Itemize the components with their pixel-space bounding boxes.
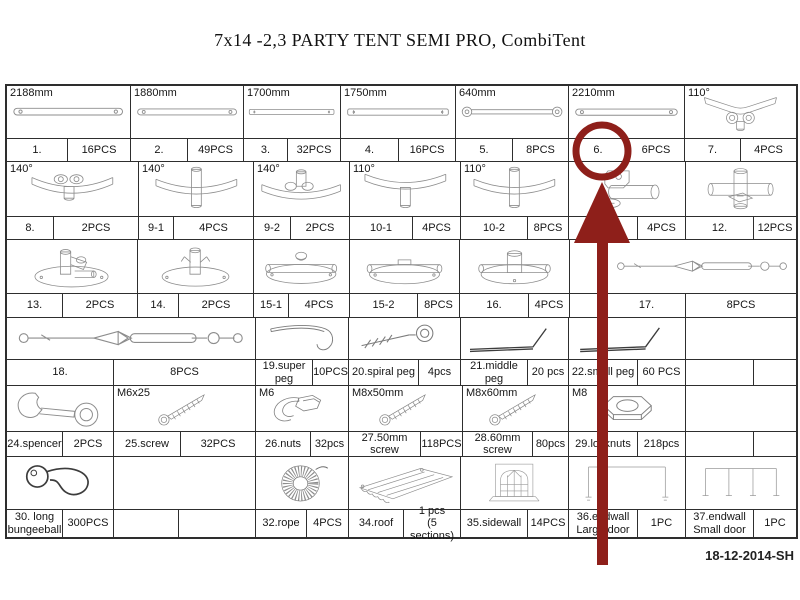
roof-icon [349, 457, 460, 509]
label-row: 30. long bungeeball300PCS32.rope4PCS34.r… [7, 510, 796, 537]
part-quantity: 4PCS [289, 294, 350, 318]
sidewall-icon [461, 457, 568, 509]
spacer-cell [570, 294, 608, 318]
part-quantity [754, 360, 796, 386]
part-illustration [569, 318, 686, 360]
part-quantity: 4PCS [638, 217, 686, 240]
dimension-caption: 1700mm [247, 87, 290, 99]
part-quantity: 4pcs [419, 360, 461, 386]
illustration-row: 140°140°140°110°110° [7, 162, 796, 217]
part-quantity: 4PCS [741, 139, 796, 162]
dimension-caption: 140° [257, 163, 280, 175]
illustration-row: 2188mm1880mm1700mm1750mm640mm2210mm110° [7, 86, 796, 139]
part-illustration: 110° [685, 86, 796, 139]
part-quantity: 4PCS [307, 510, 349, 537]
part-quantity: 2PCS [291, 217, 350, 240]
part-illustration: 2188mm [7, 86, 131, 139]
part-illustration: M8x60mm [463, 386, 569, 432]
base-side-icon [254, 240, 349, 293]
part-number: 27.50mm screw [349, 432, 421, 457]
base-pipe-icon [350, 240, 459, 293]
part-quantity: 80pcs [533, 432, 569, 457]
part-illustration [254, 240, 350, 294]
part-illustration [461, 318, 569, 360]
part-quantity: 60 PCS [638, 360, 686, 386]
part-quantity: 4PCS [174, 217, 254, 240]
tee-connector-icon [569, 162, 685, 216]
part-quantity: 16PCS [68, 139, 131, 162]
part-illustration: 140° [254, 162, 350, 217]
part-quantity: 8PCS [114, 360, 256, 386]
part-illustration [608, 240, 796, 294]
part-number: 11. [569, 217, 638, 240]
part-quantity: 2PCS [63, 432, 114, 457]
illustration-row: M6x25M6M8x50mmM8x60mmM8 [7, 386, 796, 432]
base-hub-icon [460, 240, 569, 293]
turnbuckle-icon [608, 240, 796, 293]
part-quantity: 8PCS [513, 139, 569, 162]
part-number: 15-1 [254, 294, 289, 318]
part-number: 14. [138, 294, 179, 318]
illustration-row [7, 240, 796, 294]
part-quantity [179, 510, 256, 537]
spiral-peg-icon [349, 318, 460, 359]
endwall-large-icon [569, 457, 685, 509]
part-number: 32.rope [256, 510, 307, 537]
part-illustration: 1700mm [244, 86, 341, 139]
part-illustration: 640mm [456, 86, 569, 139]
page-title: 7x14 -2,3 PARTY TENT SEMI PRO, CombiTent [0, 30, 800, 51]
part-number: 35.sidewall [461, 510, 528, 537]
line-peg-icon [461, 318, 568, 359]
part-quantity: 1PC [754, 510, 796, 537]
part-number: 1. [7, 139, 68, 162]
part-number: 25.screw [114, 432, 181, 457]
bungee-ball-icon [7, 457, 113, 509]
part-illustration [138, 240, 254, 294]
part-quantity: 2PCS [63, 294, 138, 318]
part-quantity: 32PCS [288, 139, 341, 162]
part-number: 36.endwall Large door [569, 510, 638, 537]
part-illustration [569, 457, 686, 510]
part-number: 5. [456, 139, 513, 162]
part-illustration: M8 [569, 386, 686, 432]
hook-peg-icon [256, 318, 348, 359]
part-quantity: 1PC [638, 510, 686, 537]
part-illustration [114, 457, 256, 510]
part-illustration: M8x50mm [349, 386, 463, 432]
part-number: 29.locknuts [569, 432, 638, 457]
part-quantity: 8PCS [686, 294, 796, 318]
dimension-caption: 1750mm [344, 87, 387, 99]
wrench-icon [7, 386, 113, 431]
illustration-row [7, 457, 796, 510]
part-number: 12. [686, 217, 754, 240]
part-illustration [686, 386, 796, 432]
part-number: 22.small peg [569, 360, 638, 386]
part-quantity: 118PCS [421, 432, 463, 457]
dimension-caption: 2210mm [572, 87, 615, 99]
part-illustration [686, 457, 796, 510]
part-illustration: 2210mm [569, 86, 685, 139]
part-number: 2. [131, 139, 188, 162]
part-number: 10-1 [350, 217, 413, 240]
part-number [114, 510, 179, 537]
dimension-caption: 110° [353, 163, 375, 175]
dimension-caption: M6x25 [117, 387, 150, 399]
dimension-caption: 2188mm [10, 87, 53, 99]
part-illustration [256, 457, 349, 510]
part-quantity: 2PCS [54, 217, 139, 240]
turnbuckle-icon [7, 318, 255, 359]
part-illustration: 1880mm [131, 86, 244, 139]
endwall-small-icon [686, 457, 796, 509]
part-quantity: 300PCS [63, 510, 114, 537]
part-quantity: 49PCS [188, 139, 244, 162]
part-quantity: 32PCS [181, 432, 256, 457]
revision-date: 18-12-2014-SH [705, 548, 794, 563]
dimension-caption: 140° [10, 163, 33, 175]
part-quantity: 1 pcs (5 sections) [404, 510, 461, 537]
part-number: 16. [460, 294, 529, 318]
part-illustration: 140° [7, 162, 139, 217]
part-number: 3. [244, 139, 288, 162]
part-quantity: 12PCS [754, 217, 796, 240]
part-illustration: M6x25 [114, 386, 256, 432]
part-quantity: 2PCS [179, 294, 254, 318]
part-quantity: 8PCS [418, 294, 460, 318]
part-quantity: 32pcs [311, 432, 349, 457]
part-number [686, 360, 754, 386]
part-illustration: 1750mm [341, 86, 456, 139]
illustration-row [7, 318, 796, 360]
parts-table: 2188mm1880mm1700mm1750mm640mm2210mm110°1… [5, 84, 798, 539]
part-quantity: 8PCS [528, 217, 569, 240]
part-number: 9-2 [254, 217, 291, 240]
base-upright-icon [7, 240, 137, 293]
dimension-caption: M8x60mm [466, 387, 517, 399]
part-illustration [7, 457, 114, 510]
part-illustration [569, 162, 686, 217]
part-illustration: 110° [461, 162, 569, 217]
part-quantity [754, 432, 796, 457]
part-number: 19.super peg [256, 360, 313, 386]
part-number: 18. [7, 360, 114, 386]
dimension-caption: M8 [572, 387, 587, 399]
part-number: 15-2 [350, 294, 418, 318]
part-illustration: 110° [350, 162, 461, 217]
part-number: 9-1 [139, 217, 174, 240]
part-quantity: 4PCS [413, 217, 461, 240]
label-row: 13.2PCS14.2PCS15-14PCS15-28PCS16.4PCS17.… [7, 294, 796, 318]
part-number [686, 432, 754, 457]
part-illustration [686, 162, 796, 217]
part-quantity: 4PCS [529, 294, 570, 318]
part-quantity: 16PCS [399, 139, 456, 162]
part-number: 17. [608, 294, 686, 318]
dimension-caption: 1880mm [134, 87, 177, 99]
part-number: 37.endwall Small door [686, 510, 754, 537]
part-number: 24.spencer [7, 432, 63, 457]
part-illustration [256, 318, 349, 360]
part-quantity: 6PCS [628, 139, 685, 162]
part-number: 7. [685, 139, 741, 162]
line-peg-icon [569, 318, 685, 359]
dimension-caption: 110° [688, 87, 710, 99]
part-illustration [7, 386, 114, 432]
part-illustration: M6 [256, 386, 349, 432]
label-row: 24.spencer2PCS25.screw32PCS26.nuts32pcs2… [7, 432, 796, 457]
part-number: 26.nuts [256, 432, 311, 457]
part-number: 21.middle peg [461, 360, 528, 386]
cross-connector-icon [686, 162, 796, 216]
part-number: 4. [341, 139, 399, 162]
part-quantity: 10PCS [313, 360, 349, 386]
dimension-caption: 640mm [459, 87, 496, 99]
part-number: 20.spiral peg [349, 360, 419, 386]
part-number: 30. long bungeeball [7, 510, 63, 537]
dimension-caption: 110° [464, 163, 486, 175]
dimension-caption: 140° [142, 163, 165, 175]
part-number: 6. [569, 139, 628, 162]
part-quantity: 14PCS [528, 510, 569, 537]
rope-coil-icon [256, 457, 348, 509]
part-number: 10-2 [461, 217, 528, 240]
spacer-cell [570, 240, 608, 294]
part-illustration [7, 318, 256, 360]
part-number: 13. [7, 294, 63, 318]
part-illustration [461, 457, 569, 510]
part-number: 8. [7, 217, 54, 240]
part-number: 34.roof [349, 510, 404, 537]
label-row: 1.16PCS2.49PCS3.32PCS4.16PCS5.8PCS6.6PCS… [7, 139, 796, 162]
base-fork-icon [138, 240, 253, 293]
dimension-caption: M8x50mm [352, 387, 403, 399]
label-row: 8.2PCS9-14PCS9-22PCS10-14PCS10-28PCS11.4… [7, 217, 796, 240]
dimension-caption: M6 [259, 387, 274, 399]
part-illustration [686, 318, 796, 360]
part-illustration [350, 240, 460, 294]
part-illustration [349, 457, 461, 510]
part-number: 28.60mm screw [463, 432, 533, 457]
label-row: 18.8PCS19.super peg10PCS20.spiral peg4pc… [7, 360, 796, 386]
part-illustration [7, 240, 138, 294]
part-quantity: 218pcs [638, 432, 686, 457]
part-illustration [349, 318, 461, 360]
part-illustration [460, 240, 570, 294]
part-illustration: 140° [139, 162, 254, 217]
part-quantity: 20 pcs [528, 360, 569, 386]
